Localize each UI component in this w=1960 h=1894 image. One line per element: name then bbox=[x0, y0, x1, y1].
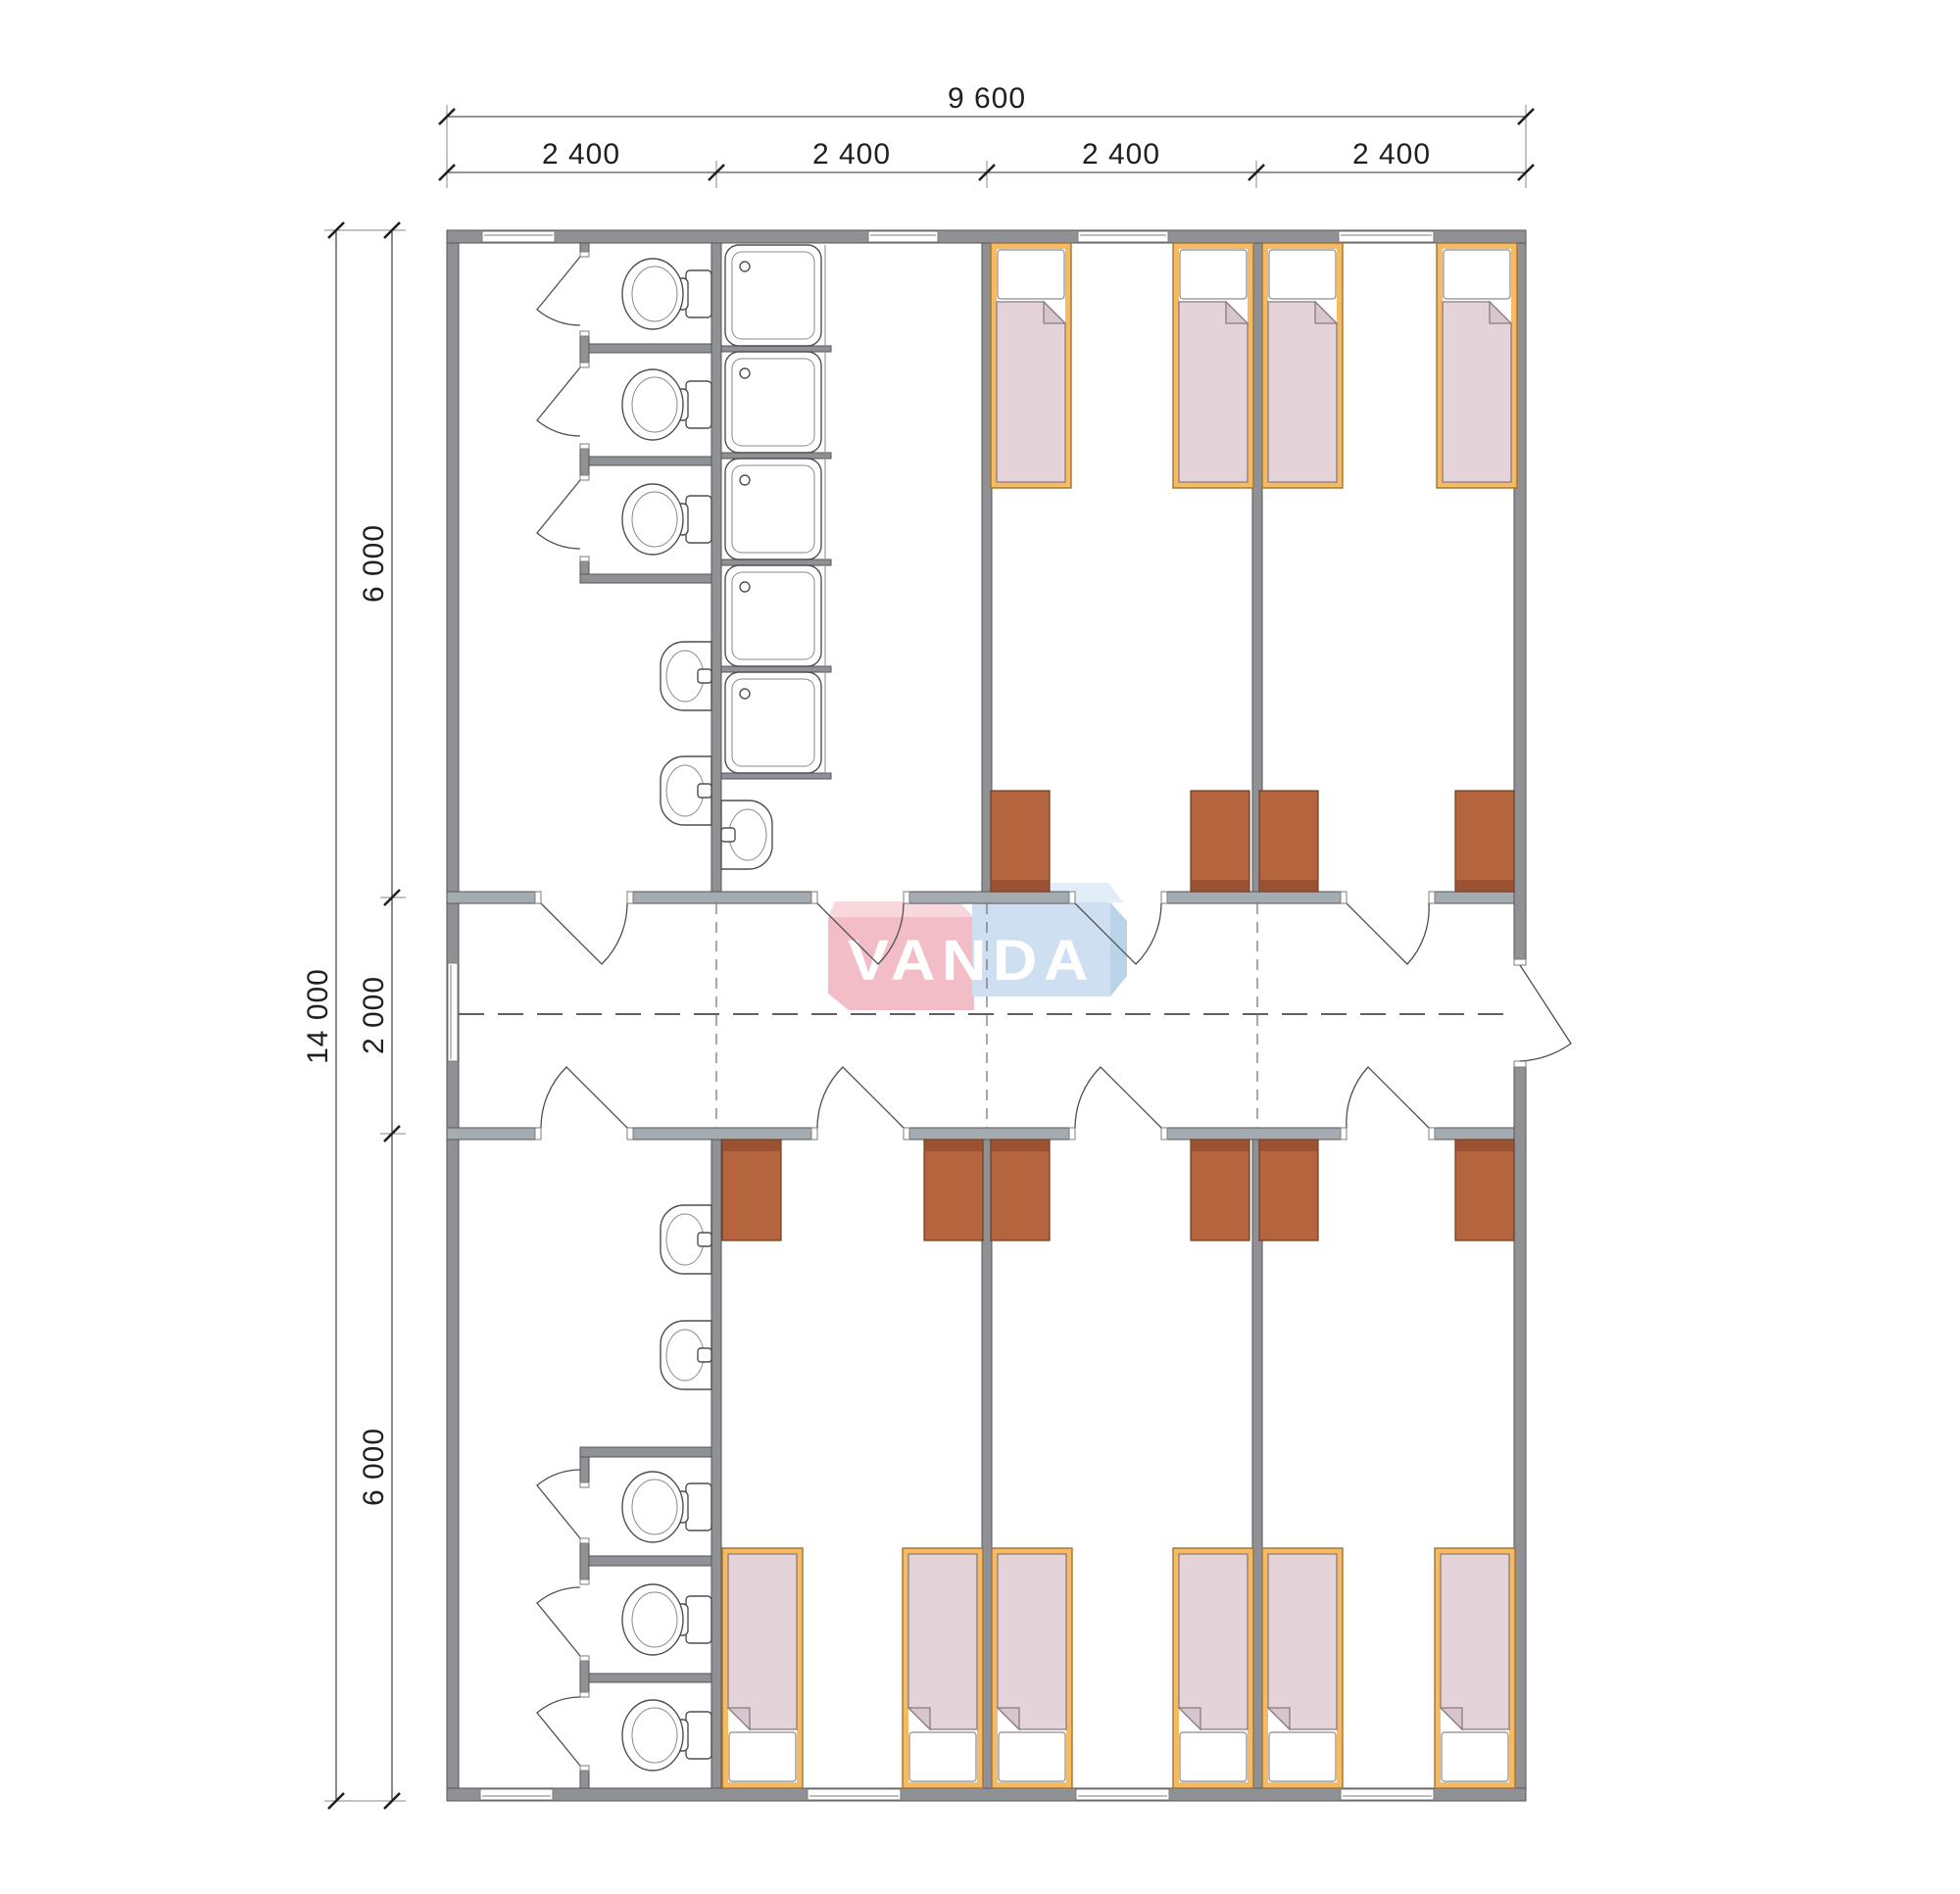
shower-tray bbox=[725, 245, 821, 346]
logo-text: VANDA bbox=[848, 929, 1095, 993]
shower-divider bbox=[721, 453, 831, 459]
sink bbox=[661, 1321, 711, 1389]
toilet bbox=[622, 1472, 711, 1542]
window bbox=[1078, 231, 1168, 242]
floor-plan-page: VANDA bbox=[0, 0, 1960, 1894]
blanket bbox=[728, 1554, 797, 1729]
corridor-wall-segment bbox=[1429, 1128, 1514, 1140]
stall-door-swing bbox=[537, 1697, 580, 1766]
wardrobe bbox=[1455, 1140, 1514, 1240]
wardrobe bbox=[1259, 1140, 1318, 1240]
stall-door-swing bbox=[537, 367, 580, 436]
stall-door-swing bbox=[537, 480, 580, 549]
blanket bbox=[1443, 302, 1511, 482]
stall-divider bbox=[589, 457, 711, 465]
blanket bbox=[1179, 1554, 1248, 1729]
shower-divider bbox=[721, 559, 831, 565]
stall-door-swing bbox=[537, 1587, 580, 1656]
door-swing bbox=[817, 1067, 904, 1128]
blanket bbox=[1441, 1554, 1509, 1729]
shower-divider bbox=[721, 666, 831, 672]
corridor-wall-segment bbox=[1161, 892, 1347, 903]
corridor-wall-segment bbox=[1161, 1128, 1347, 1140]
sink bbox=[661, 642, 711, 710]
toilet bbox=[622, 484, 711, 555]
door-swing bbox=[541, 1067, 627, 1128]
dim-module-1: 2 400 bbox=[542, 138, 620, 170]
stall-wall bbox=[580, 331, 589, 367]
toilet bbox=[622, 369, 711, 440]
wardrobes bbox=[722, 791, 1514, 1240]
wardrobe bbox=[991, 1140, 1050, 1240]
stall-wall bbox=[580, 1656, 589, 1697]
wardrobe bbox=[924, 1140, 983, 1240]
window bbox=[808, 1789, 901, 1800]
shower-divider bbox=[721, 773, 831, 779]
blanket bbox=[1268, 1554, 1337, 1729]
dim-module-4: 2 400 bbox=[1352, 138, 1431, 170]
window bbox=[482, 231, 555, 242]
corridor-wall-segment bbox=[627, 1128, 817, 1140]
blanket-folds bbox=[728, 302, 1511, 1729]
shower-divider bbox=[721, 346, 831, 352]
corridor-wall-segment bbox=[904, 892, 1075, 903]
wall-module-top-1 bbox=[711, 243, 721, 892]
stall-end-wall bbox=[580, 1447, 711, 1457]
dim-segment-bottom: 6 000 bbox=[358, 1428, 390, 1506]
blanket bbox=[1268, 302, 1337, 482]
wall-exterior-right-lower bbox=[1514, 1061, 1526, 1788]
window bbox=[868, 231, 938, 242]
floor-plan-drawing: VANDA bbox=[0, 0, 1960, 1894]
stall-door-swing bbox=[537, 257, 580, 325]
corridor-wall-segment bbox=[447, 892, 541, 903]
dim-segment-mid: 2 000 bbox=[358, 976, 390, 1054]
toilet bbox=[622, 259, 711, 329]
corridor-wall-segment bbox=[447, 1128, 541, 1140]
shower-tray bbox=[725, 672, 821, 773]
stall-end-wall bbox=[580, 574, 711, 583]
toilet bbox=[622, 1584, 711, 1655]
dim-total-height: 14 000 bbox=[302, 968, 334, 1064]
stall-divider bbox=[589, 1556, 711, 1566]
corridor-wall-segment bbox=[627, 892, 817, 903]
window bbox=[480, 1789, 553, 1800]
wardrobe bbox=[991, 791, 1050, 892]
wardrobe bbox=[1455, 791, 1514, 892]
sink bbox=[661, 756, 711, 825]
window bbox=[1076, 1789, 1169, 1800]
bed-frames bbox=[722, 243, 1517, 1788]
sink bbox=[661, 1205, 711, 1274]
dim-segment-top: 6 000 bbox=[358, 524, 390, 603]
shower-tray bbox=[725, 352, 821, 453]
stall-door-swing bbox=[537, 1470, 580, 1538]
stall-divider bbox=[589, 344, 711, 353]
exterior-door-swing bbox=[1520, 965, 1571, 1061]
shower-tray bbox=[725, 565, 821, 666]
toilet bbox=[622, 1700, 711, 1771]
stall-divider bbox=[589, 1674, 711, 1682]
dim-total-width: 9 600 bbox=[948, 82, 1026, 115]
dim-module-2: 2 400 bbox=[812, 138, 891, 170]
bed-mattresses bbox=[728, 249, 1511, 1782]
blanket bbox=[997, 302, 1065, 482]
corridor-wall-segment bbox=[1429, 892, 1514, 903]
window bbox=[1341, 1789, 1434, 1800]
bed-pillows bbox=[729, 250, 1510, 1781]
wardrobe bbox=[1191, 791, 1249, 892]
window bbox=[1339, 231, 1434, 242]
wardrobe bbox=[722, 1140, 781, 1240]
shower-tray bbox=[725, 459, 821, 559]
door-swing bbox=[1075, 1067, 1161, 1128]
door-swing bbox=[1347, 903, 1429, 964]
bed-blankets bbox=[728, 302, 1511, 1729]
blanket bbox=[998, 1554, 1066, 1729]
wall-module-bottom-1 bbox=[711, 1140, 721, 1788]
wardrobe bbox=[1191, 1140, 1249, 1240]
showers bbox=[725, 245, 825, 779]
door-swing bbox=[541, 903, 627, 964]
sink bbox=[721, 801, 772, 869]
blanket bbox=[908, 1554, 977, 1729]
wardrobe bbox=[1259, 791, 1318, 892]
window bbox=[448, 963, 458, 1061]
stall-wall bbox=[580, 444, 589, 480]
blanket bbox=[1179, 302, 1248, 482]
door-swing bbox=[1347, 1067, 1429, 1128]
corridor-wall-segment bbox=[904, 1128, 1075, 1140]
dim-module-3: 2 400 bbox=[1082, 138, 1160, 170]
logo-blue-side bbox=[1110, 902, 1127, 996]
stall-wall bbox=[580, 1538, 589, 1584]
